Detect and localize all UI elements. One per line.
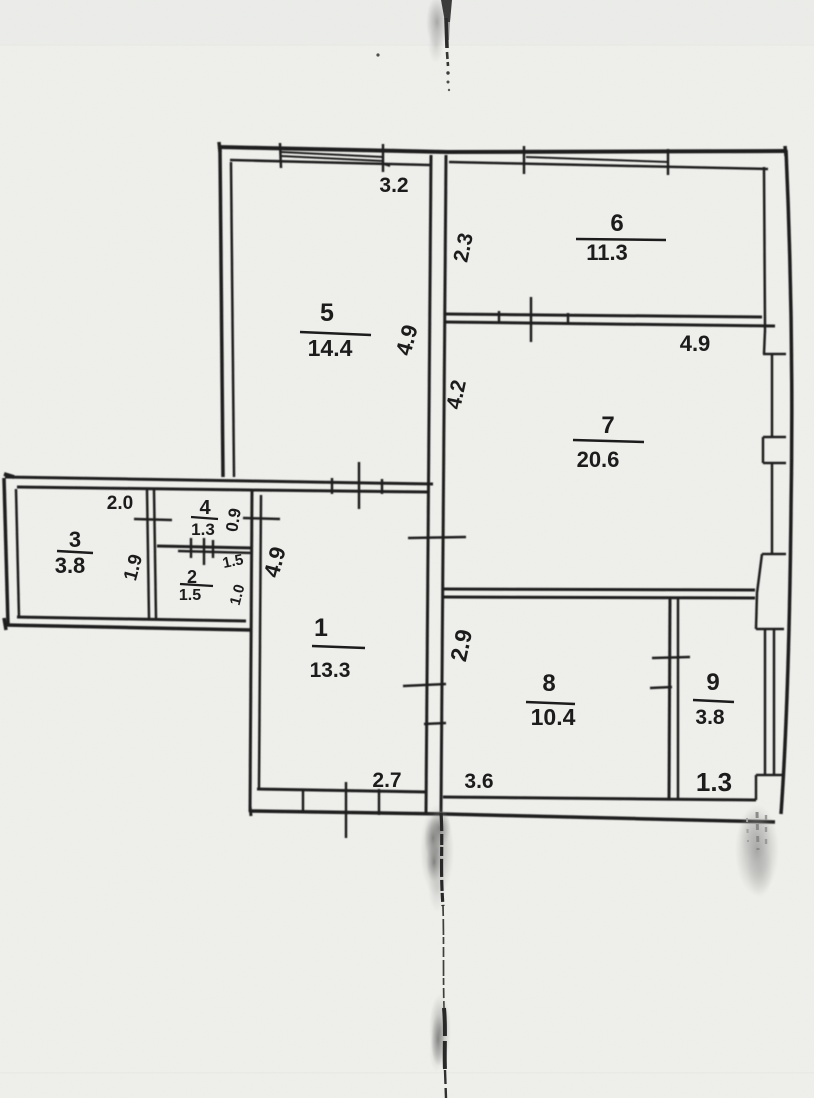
svg-text:2.7: 2.7 [372,769,401,792]
svg-text:20.6: 20.6 [577,447,620,472]
svg-text:2.0: 2.0 [107,493,133,514]
svg-text:3.8: 3.8 [695,706,725,729]
svg-text:1.3: 1.3 [191,520,215,539]
svg-text:11.3: 11.3 [586,240,628,265]
svg-text:4.9: 4.9 [680,331,711,356]
svg-text:9: 9 [706,669,719,696]
svg-text:7: 7 [601,412,614,439]
svg-text:5: 5 [320,299,334,327]
svg-text:1.3: 1.3 [696,767,732,797]
svg-text:3.8: 3.8 [55,553,86,578]
svg-text:6: 6 [610,210,623,237]
svg-text:0.9: 0.9 [222,507,245,534]
svg-text:14.4: 14.4 [308,335,353,361]
svg-text:10.4: 10.4 [531,704,576,730]
svg-text:3: 3 [69,527,81,552]
svg-text:3.6: 3.6 [464,770,493,793]
svg-text:1.5: 1.5 [179,587,201,604]
svg-text:4: 4 [199,497,211,519]
svg-text:8: 8 [542,670,555,697]
svg-text:13.3: 13.3 [310,659,351,682]
svg-text:3.2: 3.2 [379,174,408,197]
svg-text:1: 1 [314,614,328,642]
